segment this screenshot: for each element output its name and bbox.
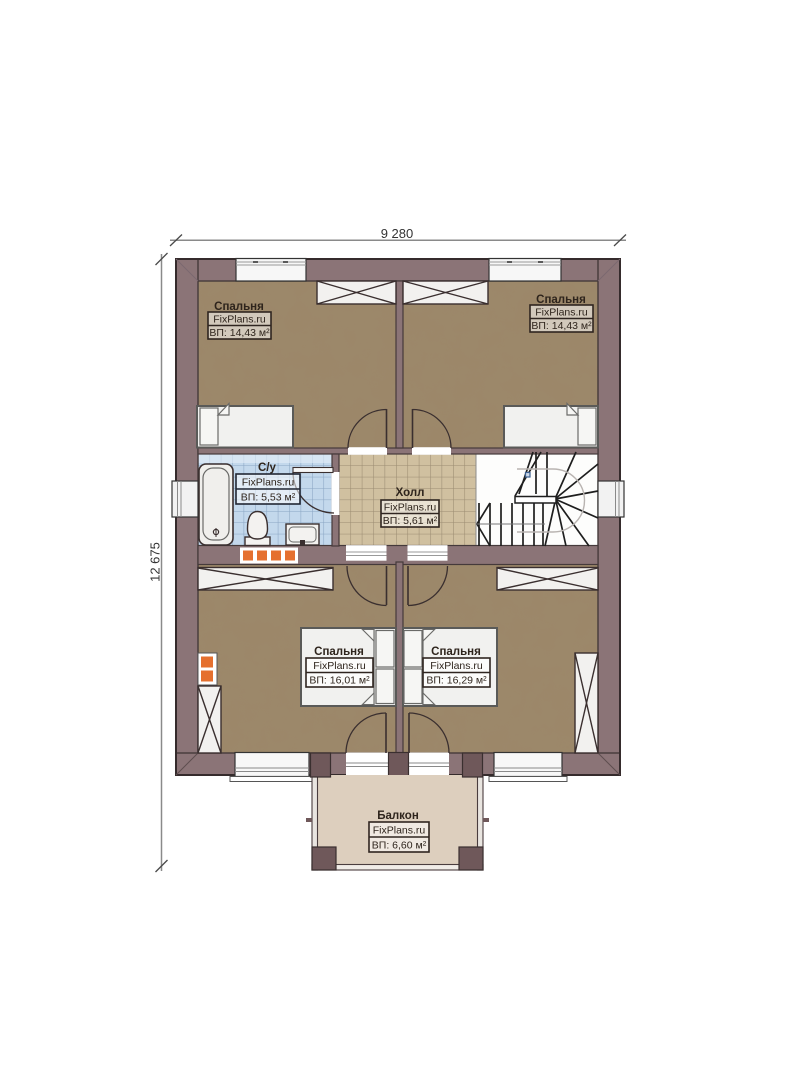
svg-text:Холл: Холл [396, 487, 425, 499]
svg-text:ВП: 6,60 м²: ВП: 6,60 м² [372, 840, 427, 852]
svg-text:FixPlans.ru: FixPlans.ru [213, 314, 266, 326]
svg-text:ВП: 5,61 м²: ВП: 5,61 м² [383, 515, 438, 527]
svg-text:FixPlans.ru: FixPlans.ru [242, 477, 295, 489]
svg-text:FixPlans.ru: FixPlans.ru [313, 660, 366, 672]
svg-text:FixPlans.ru: FixPlans.ru [430, 660, 483, 672]
svg-text:FixPlans.ru: FixPlans.ru [384, 502, 437, 514]
svg-text:Спальня: Спальня [314, 646, 364, 658]
svg-text:ВП: 5,53 м²: ВП: 5,53 м² [241, 492, 296, 504]
svg-text:Спальня: Спальня [431, 646, 481, 658]
svg-text:FixPlans.ru: FixPlans.ru [535, 307, 588, 319]
svg-text:ВП: 14,43 м²: ВП: 14,43 м² [531, 320, 592, 332]
svg-text:ВП: 16,29 м²: ВП: 16,29 м² [426, 675, 487, 687]
svg-text:ВП: 14,43 м²: ВП: 14,43 м² [209, 327, 270, 339]
svg-text:С/у: С/у [258, 462, 277, 474]
svg-text:FixPlans.ru: FixPlans.ru [373, 825, 426, 837]
svg-text:9 280: 9 280 [381, 226, 414, 241]
svg-text:Балкон: Балкон [377, 810, 419, 822]
svg-text:12 675: 12 675 [148, 542, 163, 582]
svg-text:ВП: 16,01 м²: ВП: 16,01 м² [309, 675, 370, 687]
